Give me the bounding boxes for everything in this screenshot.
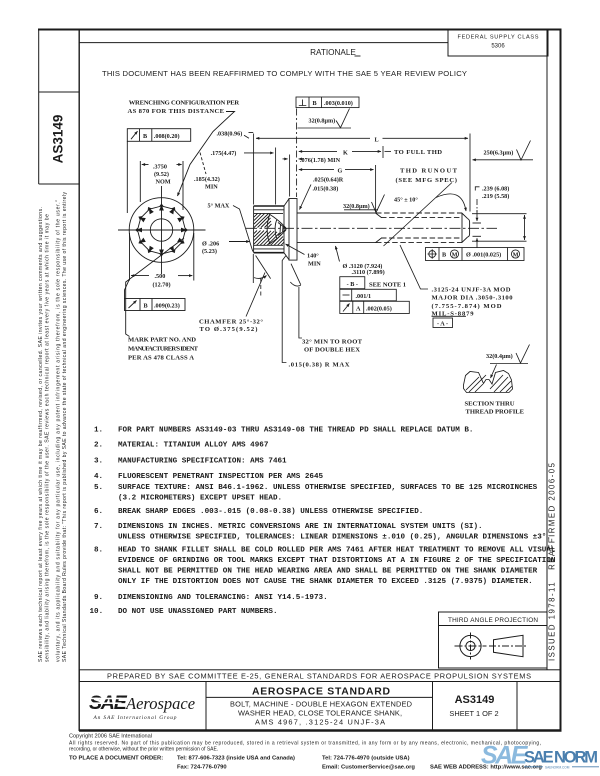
svg-text:SAE reviews each technical rep: SAE reviews each technical report at lea…: [38, 207, 44, 662]
svg-text:SAE NORM: SAE NORM: [524, 749, 598, 767]
svg-text:Copyright 2006 SAE Internation: Copyright 2006 SAE International: [69, 734, 152, 740]
svg-text:Tel: 724-776-4970 (outside USA: Tel: 724-776-4970 (outside USA): [322, 755, 410, 761]
svg-text:SAE Technical Standards Board: SAE Technical Standards Board Rules prov…: [62, 192, 68, 662]
svg-text:SAE: SAE: [481, 742, 529, 770]
svg-text:SAENORM.COM: SAENORM.COM: [545, 766, 570, 770]
svg-text:All rights reserved. No part o: All rights reserved. No part of this pub…: [69, 740, 541, 746]
svg-text:Fax: 724-776-0790: Fax: 724-776-0790: [177, 764, 227, 770]
svg-text:voluntary, and its applicabili: voluntary, and its applicability and sui…: [56, 200, 62, 662]
svg-text:sensibility, and liability ari: sensibility, and liability arising there…: [45, 214, 51, 662]
svg-text:An SAE International Group: An SAE International Group: [93, 715, 177, 721]
svg-text:Email: CustomerService@sae.org: Email: CustomerService@sae.org: [322, 764, 415, 770]
svg-text:recording, or otherwise, witho: recording, or otherwise, without the pri…: [69, 747, 218, 753]
svg-text:Aerospace: Aerospace: [125, 694, 195, 713]
svg-text:Tel: 877-606-7323 (inside USA: Tel: 877-606-7323 (inside USA and Canada…: [177, 755, 295, 761]
svg-text:TO PLACE A DOCUMENT ORDER:: TO PLACE A DOCUMENT ORDER:: [69, 755, 163, 761]
